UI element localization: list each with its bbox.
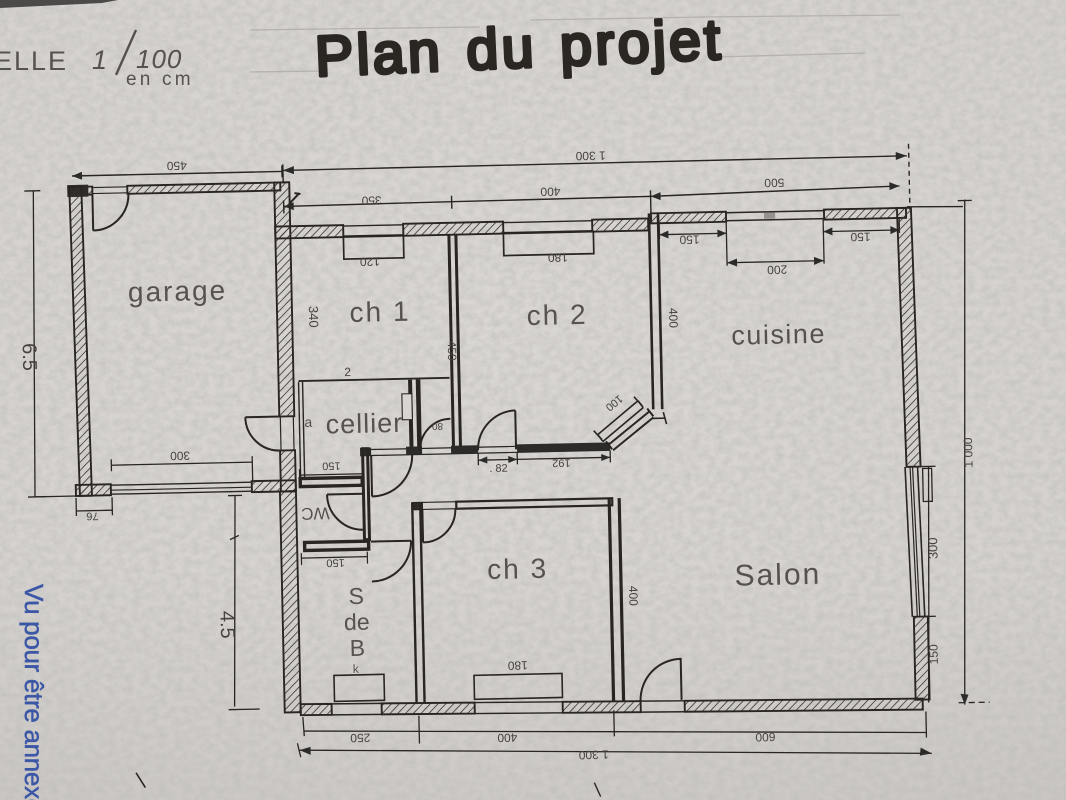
svg-text:ELLE: ELLE bbox=[0, 46, 68, 76]
svg-text:200: 200 bbox=[767, 262, 788, 276]
svg-text:cellier: cellier bbox=[325, 408, 403, 440]
svg-text:192: 192 bbox=[552, 456, 571, 468]
svg-text:76: 76 bbox=[86, 510, 99, 522]
svg-text:garage: garage bbox=[128, 275, 228, 308]
svg-text:de: de bbox=[344, 609, 370, 636]
svg-text:350: 350 bbox=[361, 193, 382, 207]
svg-text:150: 150 bbox=[926, 644, 940, 665]
svg-text:180: 180 bbox=[547, 250, 568, 264]
svg-text:400: 400 bbox=[540, 184, 561, 198]
svg-text:500: 500 bbox=[764, 175, 785, 189]
svg-text:600: 600 bbox=[755, 730, 776, 744]
svg-text:400: 400 bbox=[666, 308, 680, 329]
svg-text:300: 300 bbox=[170, 448, 191, 462]
svg-text:2: 2 bbox=[344, 365, 351, 379]
svg-text:S: S bbox=[348, 583, 364, 609]
svg-text:450: 450 bbox=[166, 158, 187, 172]
svg-text:340: 340 bbox=[306, 306, 321, 328]
svg-text:4.5: 4.5 bbox=[216, 611, 239, 639]
svg-text:250: 250 bbox=[350, 731, 371, 745]
svg-text:120: 120 bbox=[359, 254, 380, 268]
svg-text:ch 3: ch 3 bbox=[487, 553, 549, 585]
svg-text:B: B bbox=[349, 635, 365, 661]
svg-text:. 82: . 82 bbox=[489, 463, 508, 475]
svg-text:400: 400 bbox=[497, 730, 518, 744]
svg-text:1 300: 1 300 bbox=[578, 747, 609, 762]
svg-text:Vu pour être annexé: Vu pour être annexé bbox=[19, 584, 49, 800]
svg-text:150: 150 bbox=[326, 556, 345, 568]
svg-text:80: 80 bbox=[431, 420, 443, 431]
svg-text:ch 2: ch 2 bbox=[526, 299, 588, 331]
svg-text:150: 150 bbox=[850, 230, 871, 244]
svg-text:6.5: 6.5 bbox=[18, 343, 41, 371]
svg-text:1 300: 1 300 bbox=[575, 148, 606, 163]
svg-text:400: 400 bbox=[626, 586, 640, 607]
svg-text:en cm: en cm bbox=[126, 69, 194, 90]
svg-text:180: 180 bbox=[507, 658, 528, 672]
svg-text:1: 1 bbox=[92, 45, 107, 75]
svg-text:150: 150 bbox=[322, 459, 341, 471]
svg-text:1 000: 1 000 bbox=[961, 437, 976, 468]
svg-text:Salon: Salon bbox=[734, 558, 821, 593]
svg-text:300: 300 bbox=[925, 537, 940, 559]
svg-text:a: a bbox=[304, 414, 312, 430]
svg-text:450: 450 bbox=[445, 341, 459, 362]
svg-text:150: 150 bbox=[679, 232, 700, 246]
svg-text:WC: WC bbox=[301, 503, 330, 523]
svg-text:ch 1: ch 1 bbox=[349, 296, 411, 328]
svg-text:cuisine: cuisine bbox=[731, 319, 826, 351]
